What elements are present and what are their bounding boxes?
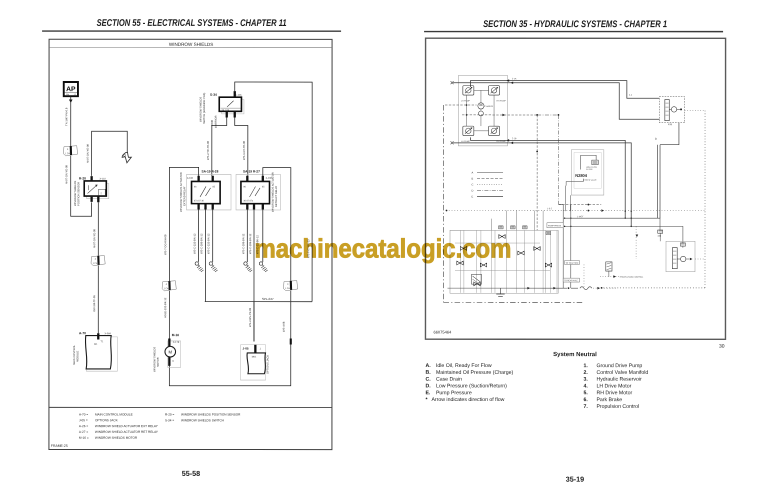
svg-text:Hydraulic Reservoir: Hydraulic Reservoir <box>596 377 642 383</box>
svg-text:M: M <box>169 350 173 355</box>
svg-text:RETRACT RELAY: RETRACT RELAY <box>275 185 278 207</box>
svg-text:A-70 =: A-70 = <box>79 412 88 416</box>
svg-text:FILTER: FILTER <box>586 168 593 171</box>
svg-text:LH Drive Motor: LH Drive Motor <box>596 383 631 389</box>
svg-text:X-178: X-178 <box>173 341 180 344</box>
svg-text:1-0-2: 1-0-2 <box>547 207 553 210</box>
svg-text:Pump Pressure: Pump Pressure <box>436 390 472 396</box>
svg-text:S-34 =: S-34 = <box>165 418 174 422</box>
svg-text:M-16 =: M-16 = <box>79 436 89 440</box>
svg-text:2-1A: 2-1A <box>512 77 517 80</box>
svg-text:30: 30 <box>719 344 725 350</box>
svg-text:CHARGE: CHARGE <box>485 105 494 108</box>
svg-text:OPTIONS JACK: OPTIONS JACK <box>95 418 119 422</box>
svg-text:WINDROW SHIELD ACTUATOR EXT RE: WINDROW SHIELD ACTUATOR EXT RELAY <box>95 424 158 428</box>
svg-text:2-1B: 2-1B <box>512 137 517 140</box>
svg-text:A-27 =: A-27 = <box>79 430 88 434</box>
svg-text:M01: M01 <box>252 356 257 359</box>
svg-text:J-05 =: J-05 = <box>79 418 88 422</box>
svg-text:WINDROW SHIELDS: WINDROW SHIELDS <box>169 42 213 47</box>
svg-text:A-26 =: A-26 = <box>79 424 88 428</box>
svg-text:WARRIOR: WARRIOR <box>215 115 218 128</box>
svg-text:M-07-GN-YE-08: M-07-GN-YE-08 <box>65 165 68 184</box>
svg-text:87a 87 30: 87a 87 30 <box>194 199 205 202</box>
svg-text:X-106: X-106 <box>235 94 242 97</box>
svg-text:J-05: J-05 <box>243 347 249 351</box>
svg-text:Arrow indicates direction of f: Arrow indicates direction of flow <box>431 397 504 403</box>
svg-text:RH PUMP: RH PUMP <box>497 100 507 103</box>
svg-text:SWITCH (WARRIOR / W5): SWITCH (WARRIOR / W5) <box>203 93 206 124</box>
svg-text:B: B <box>472 178 474 181</box>
svg-text:X-110: X-110 <box>100 178 107 181</box>
svg-text:EXTEND RELAY: EXTEND RELAY <box>183 186 186 206</box>
svg-text:SECTION 35 - HYDRAULIC SYSTEMS: SECTION 35 - HYDRAULIC SYSTEMS - CHAPTER… <box>483 19 667 30</box>
svg-text:OW-3M-TF-05: OW-3M-TF-05 <box>93 295 96 312</box>
svg-text:66075464: 66075464 <box>433 330 452 335</box>
svg-text:D: D <box>472 190 474 193</box>
svg-text:SA-19 R-28: SA-19 R-28 <box>202 170 219 174</box>
svg-text:LH PUMP: LH PUMP <box>461 100 471 103</box>
svg-text:WINDROW SHIELDS POSITION SENSO: WINDROW SHIELDS POSITION SENSOR <box>181 413 241 417</box>
svg-text:FRAME-25: FRAME-25 <box>51 444 68 448</box>
svg-text:A-70: A-70 <box>79 331 86 335</box>
svg-text:R-20: R-20 <box>79 176 86 180</box>
svg-text:A: A <box>472 172 474 175</box>
svg-text:3.: 3. <box>583 377 588 383</box>
svg-text:machinecatalogic.com: machinecatalogic.com <box>254 233 511 263</box>
svg-text:1-MOT: 1-MOT <box>577 215 584 218</box>
svg-text:X-084: X-084 <box>104 332 111 335</box>
svg-text:WINDROW SHIELD ACTUATOR RET RE: WINDROW SHIELD ACTUATOR RET RELAY <box>95 430 158 434</box>
svg-text:E: E <box>472 196 474 199</box>
svg-text:CHECK VALVE: CHECK VALVE <box>584 179 598 182</box>
svg-text:B: B <box>655 138 657 141</box>
svg-text:AP: AP <box>66 86 76 93</box>
svg-text:Idle Oil, Ready For Flow: Idle Oil, Ready For Flow <box>436 363 492 369</box>
svg-text:WS-C-206-BN-12: WS-C-206-BN-12 <box>249 233 252 254</box>
svg-text:M-07-GN-YE-08: M-07-GN-YE-08 <box>93 229 96 248</box>
svg-text:N2804: N2804 <box>575 173 588 178</box>
svg-text:PN: PN <box>66 93 69 96</box>
svg-text:WS-C-206-BN-12: WS-C-206-BN-12 <box>200 233 203 254</box>
svg-text:TO REAR AXLE: TO REAR AXLE <box>564 279 578 282</box>
svg-text:MAIN CONTROL MODULE: MAIN CONTROL MODULE <box>95 412 133 416</box>
svg-text:Ground Drive Pump: Ground Drive Pump <box>596 363 642 369</box>
svg-text:Park Brake: Park Brake <box>596 397 622 403</box>
svg-text:PROPULSION CONTROL: PROPULSION CONTROL <box>620 276 644 279</box>
svg-text:E.: E. <box>425 390 430 396</box>
svg-text:System Neutral: System Neutral <box>553 351 597 358</box>
svg-text:WS-3-GY-YE-08: WS-3-GY-YE-08 <box>243 140 246 159</box>
svg-text:SA-19 R-27: SA-19 R-27 <box>243 170 260 174</box>
svg-text:WS-2-BN-YE-08: WS-2-BN-YE-08 <box>249 307 252 327</box>
svg-text:AGLE-232-BK-12: AGLE-232-BK-12 <box>164 297 167 318</box>
svg-text:6.: 6. <box>583 397 588 403</box>
svg-text:B.: B. <box>425 370 431 376</box>
svg-text:Propulsion Control: Propulsion Control <box>596 404 639 410</box>
svg-text:X-106: X-106 <box>187 177 194 180</box>
svg-text:SECTION 55 - ELECTRICAL SYSTEM: SECTION 55 - ELECTRICAL SYSTEMS - CHAPTE… <box>97 18 287 29</box>
svg-text:SPL-047: SPL-047 <box>262 297 274 301</box>
svg-text:POSITION SENSOR: POSITION SENSOR <box>77 182 80 206</box>
svg-text:MODULE: MODULE <box>76 351 79 362</box>
svg-text:D.: D. <box>425 383 431 389</box>
svg-text:35-19: 35-19 <box>566 475 584 484</box>
svg-text:MOTOR: MOTOR <box>157 357 160 367</box>
svg-text:55-58: 55-58 <box>182 469 200 478</box>
svg-text:OPTIONS JACK: OPTIONS JACK <box>267 355 270 374</box>
svg-text:WS-C-232-BN-12: WS-C-232-BN-12 <box>193 233 196 254</box>
svg-text:1.: 1. <box>583 363 588 369</box>
svg-text:F008: F008 <box>211 119 214 125</box>
svg-text:M-16: M-16 <box>172 333 179 337</box>
svg-text:RH Drive Motor: RH Drive Motor <box>596 390 632 396</box>
svg-text:S-34: S-34 <box>210 93 217 97</box>
svg-text:2.: 2. <box>583 370 588 376</box>
svg-text:C.: C. <box>425 377 431 383</box>
svg-text:WS-2-YE-YE-08: WS-2-YE-YE-08 <box>207 141 210 160</box>
svg-text:Maintained Oil Pressure (Charg: Maintained Oil Pressure (Charge) <box>436 370 514 376</box>
svg-text:5.: 5. <box>583 390 588 396</box>
svg-text:TN-1M7-PK-0.8: TN-1M7-PK-0.8 <box>65 107 68 126</box>
svg-text:WS-4-08: WS-4-08 <box>283 321 286 332</box>
svg-text:Case Drain: Case Drain <box>436 377 462 383</box>
svg-text:435: 435 <box>668 123 673 126</box>
svg-text:WINDROW SHIELDS SWITCH: WINDROW SHIELDS SWITCH <box>181 418 224 422</box>
svg-text:4.: 4. <box>583 383 588 389</box>
svg-text:TO TRACTION: TO TRACTION <box>565 262 578 265</box>
svg-text:PUMP PRESS: PUMP PRESS <box>548 224 562 227</box>
svg-text:WS-7-OG-WH-08: WS-7-OG-WH-08 <box>164 234 167 255</box>
svg-text:Control Valve Manifold: Control Valve Manifold <box>596 370 648 376</box>
svg-text:30 87 87a: 30 87 87a <box>243 199 254 202</box>
svg-text:7.: 7. <box>583 404 588 410</box>
svg-text:C: C <box>472 184 474 187</box>
svg-text:A.: A. <box>425 363 431 369</box>
svg-text:WS-C-206-BN-12: WS-C-206-BN-12 <box>242 233 245 254</box>
svg-text:Low Pressure (Suction/Return): Low Pressure (Suction/Return) <box>436 383 507 389</box>
svg-text:R-20 =: R-20 = <box>165 413 175 417</box>
svg-text:M-07-GN-YE-08: M-07-GN-YE-08 <box>87 144 90 163</box>
svg-text:WS-C-232-BN-12: WS-C-232-BN-12 <box>207 233 210 254</box>
svg-text:WINDROW SHIELDS MOTOR: WINDROW SHIELDS MOTOR <box>95 436 138 440</box>
